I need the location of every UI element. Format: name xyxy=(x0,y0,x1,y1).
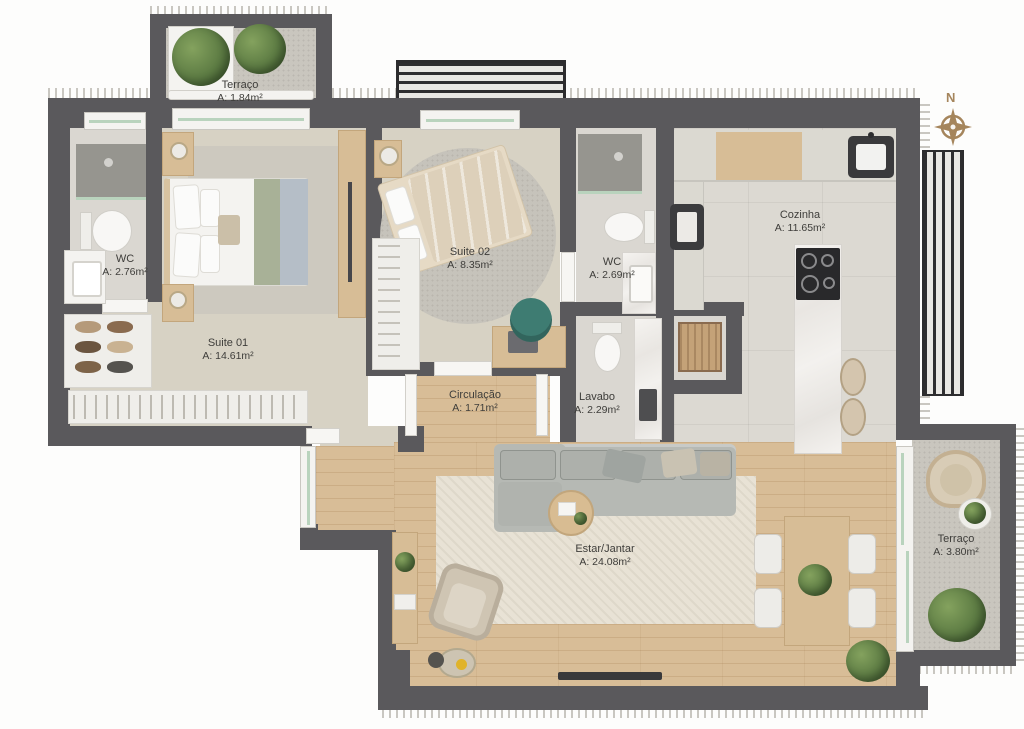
door-suite01 xyxy=(306,428,340,444)
plant-icon xyxy=(964,502,986,524)
wall xyxy=(560,128,576,252)
room-label-terrace-right: TerraçoA: 3.80m² xyxy=(906,532,1006,560)
wall-niche xyxy=(396,650,410,686)
throw-pillow xyxy=(660,448,697,478)
wardrobe-suite02 xyxy=(372,238,420,370)
vase-icon xyxy=(428,652,444,668)
faucet-icon xyxy=(868,132,874,138)
shower-glass xyxy=(578,191,642,194)
toilet-icon xyxy=(594,334,621,372)
toilet-icon xyxy=(604,212,644,242)
room-label-estar-jantar: Estar/JantarA: 24.08m² xyxy=(545,542,665,570)
window-suite01 xyxy=(172,108,310,130)
door-wc1 xyxy=(102,299,148,313)
hamper-basket xyxy=(678,322,722,372)
wall-terrace xyxy=(896,650,1016,666)
bed-runner xyxy=(254,179,280,285)
floor-plan: N TerraçoA: 1.84m² WCA: 2.76m² Suite 01A… xyxy=(0,0,1024,729)
room-label-wc2: WCA: 2.69m² xyxy=(572,255,652,283)
shower-icon xyxy=(76,144,146,198)
plant-icon xyxy=(234,24,286,74)
dining-chair xyxy=(754,534,782,574)
entry-glass-door xyxy=(300,446,316,528)
room-label-suite01: Suite 01A: 14.61m² xyxy=(178,336,278,364)
exterior-hatch xyxy=(150,6,332,14)
exterior-hatch xyxy=(382,710,926,718)
window-wc1 xyxy=(84,112,146,130)
room-label-lavabo: LavaboA: 2.29m² xyxy=(547,390,647,418)
louver-window-right xyxy=(922,150,964,396)
room-label-cozinha: CozinhaA: 11.65m² xyxy=(750,208,850,236)
fruit-bowl-icon xyxy=(456,659,467,670)
compass-north-label: N xyxy=(946,90,955,105)
wall-terrace xyxy=(896,424,1016,440)
plant-icon xyxy=(928,588,986,642)
kitchen-sink-icon xyxy=(848,136,894,178)
desk-chair xyxy=(510,298,552,342)
toilet-icon xyxy=(80,212,92,250)
dining-chair xyxy=(754,588,782,628)
wall xyxy=(660,316,674,442)
console-sideboard xyxy=(392,532,418,644)
exterior-hatch xyxy=(920,104,930,150)
tv-panel-icon xyxy=(348,182,352,282)
plant-icon xyxy=(846,640,890,682)
cutting-board-counter xyxy=(716,132,802,180)
room-label-suite02: Suite 02A: 8.35m² xyxy=(420,245,520,273)
entry-hall-floor xyxy=(316,446,398,530)
shower-head-icon xyxy=(104,158,113,167)
dining-chair xyxy=(848,534,876,574)
coffee-table xyxy=(548,490,594,536)
shower-icon xyxy=(578,134,642,192)
exterior-hatch xyxy=(920,396,930,424)
wall-bottom xyxy=(378,686,928,710)
bed-double xyxy=(164,178,308,286)
tv-icon xyxy=(558,672,662,680)
bed-blanket xyxy=(280,179,308,285)
room-label-wc1: WCA: 2.76m² xyxy=(85,252,165,280)
dining-chair xyxy=(848,588,876,628)
clothes-rail xyxy=(68,390,308,424)
shower-glass xyxy=(76,197,146,200)
wall-right xyxy=(896,98,920,440)
lamp-icon xyxy=(169,291,187,309)
toilet-icon xyxy=(92,210,132,252)
floor-tray xyxy=(438,648,476,678)
wardrobe-suite01 xyxy=(338,130,366,318)
books xyxy=(394,594,416,610)
shower-head-icon xyxy=(614,152,623,161)
lavabo-counter xyxy=(634,318,662,440)
throw-pillow xyxy=(700,452,730,476)
wall xyxy=(560,302,576,442)
lamp-icon xyxy=(170,142,188,160)
toilet-icon xyxy=(644,210,655,244)
cooktop-icon xyxy=(796,248,840,300)
compass-icon xyxy=(932,106,974,148)
exterior-hatch xyxy=(48,88,150,98)
toilet-icon xyxy=(592,322,622,334)
stool xyxy=(840,358,866,396)
accent-pillow xyxy=(218,215,240,245)
stool xyxy=(840,398,866,436)
door-circulation-left xyxy=(405,374,417,436)
shoe-shelf xyxy=(64,314,152,388)
wall xyxy=(48,426,312,446)
room-label-terrace-top: TerraçoA: 1.84m² xyxy=(190,78,290,106)
room-label-circulacao: CirculaçãoA: 1.71m² xyxy=(425,388,525,416)
exterior-hatch xyxy=(1016,428,1024,662)
plant-icon xyxy=(395,552,415,572)
plant-icon xyxy=(798,564,832,596)
lamp-icon xyxy=(379,146,399,166)
oven-icon xyxy=(670,204,704,250)
window-suite02 xyxy=(420,110,520,130)
door-suite02 xyxy=(434,361,492,376)
